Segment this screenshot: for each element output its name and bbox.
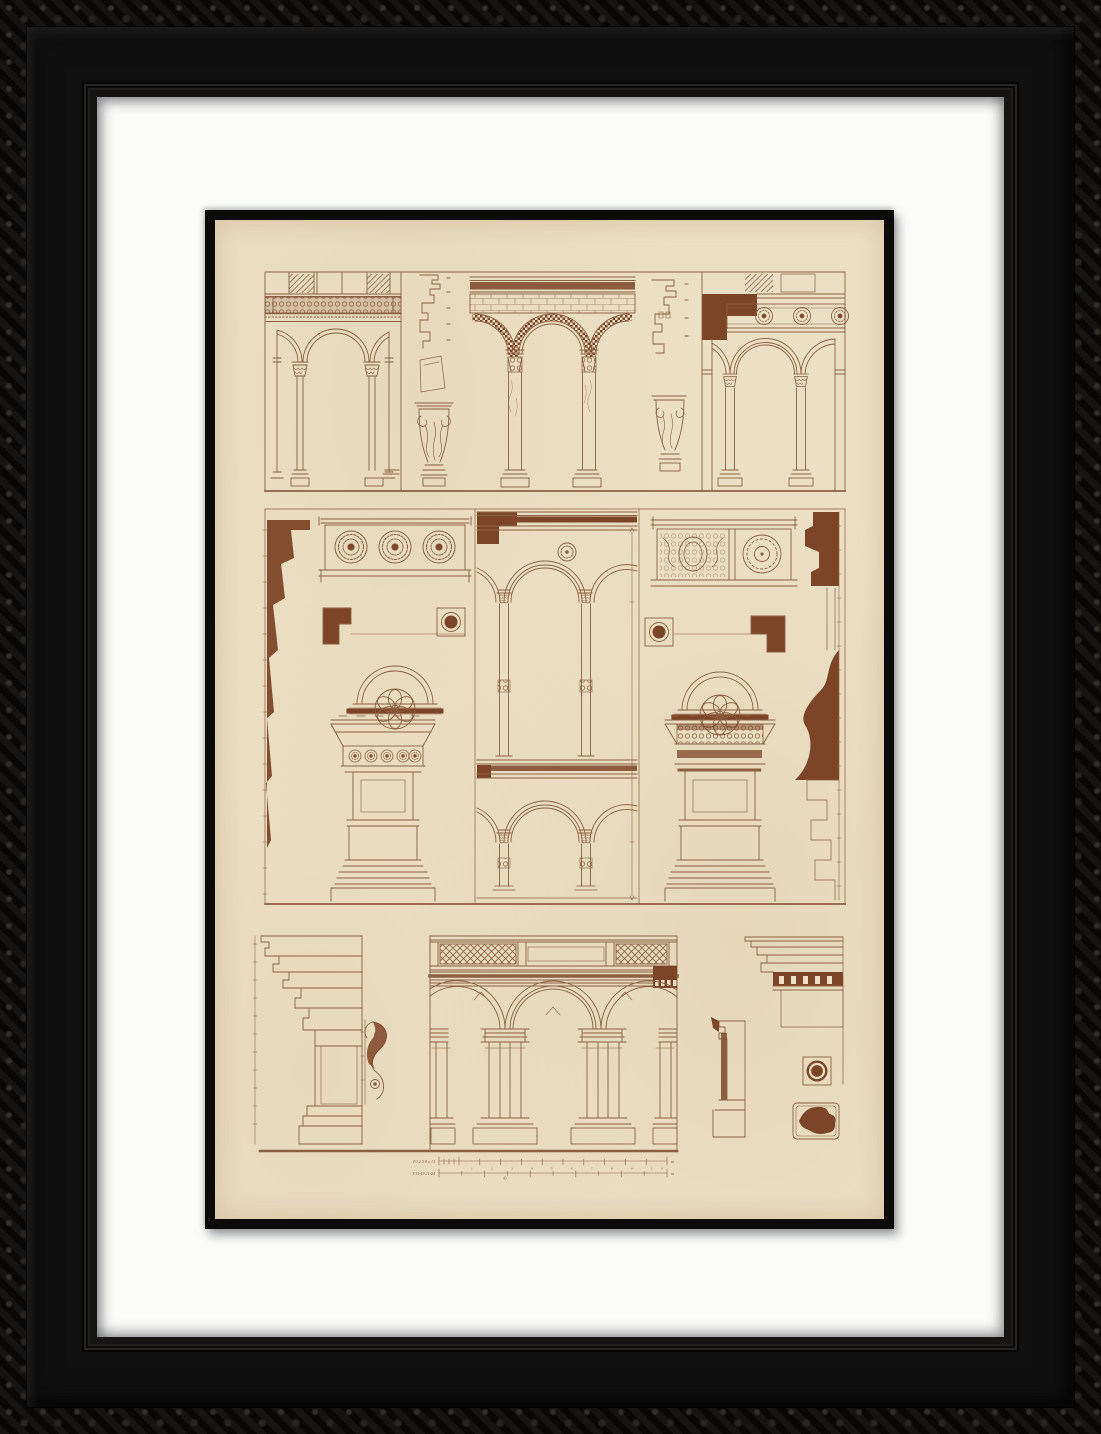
arcade-elevation-bottom-center (430, 936, 677, 1151)
cornice-pilaster-and-pier-plans-bottom-right (711, 937, 843, 1139)
console-scroll-bracket (361, 1020, 387, 1104)
rosette-frieze-and-pedestal-left (266, 517, 471, 901)
arcade-elevation-top-left (265, 272, 401, 491)
framed-print-photo: F.1.2.5.8 u.13 1 2 3 4 5 6 7 8 9 10 m F.… (0, 0, 1101, 1434)
garland-frieze-and-pedestal-right (645, 512, 841, 901)
arcade-elevation-top-right (702, 272, 849, 491)
plate-paper: F.1.2.5.8 u.13 1 2 3 4 5 6 7 8 9 10 m F.… (215, 220, 884, 1219)
scale-bar-2 (439, 1169, 667, 1177)
print: F.1.2.5.8 u.13 1 2 3 4 5 6 7 8 9 10 m F.… (205, 210, 894, 1229)
arcade-elevation-top-center (470, 277, 635, 487)
two-story-loggia-section (477, 512, 637, 900)
scale-bar-1-label: F.1.2.5.8 u.13 (412, 1159, 435, 1164)
scale-bar-2-annotation: 43 (503, 1177, 507, 1181)
scale-bar-labels: F.1.2.5.8 u.13 1 2 3 4 5 6 7 8 9 10 m F.… (412, 1159, 675, 1181)
scale-bar-2-unit: m (671, 1171, 675, 1176)
scale-bar-1-unit: m (671, 1159, 675, 1164)
plate-drawing: F.1.2.5.8 u.13 1 2 3 4 5 6 7 8 9 10 m F.… (215, 220, 884, 1219)
scale-bar-1 (439, 1157, 667, 1165)
moulding-profile-and-capital-detail-1 (415, 275, 453, 486)
scale-bar-2-label: F.11-19.21-24 (412, 1171, 435, 1176)
entablature-and-pilaster-profile-bottom-left (253, 936, 362, 1144)
moulding-profile-and-capital-detail-2 (652, 280, 688, 471)
scale-bar-1-ticks: 1 2 3 4 5 6 7 8 9 10 (471, 1167, 663, 1171)
